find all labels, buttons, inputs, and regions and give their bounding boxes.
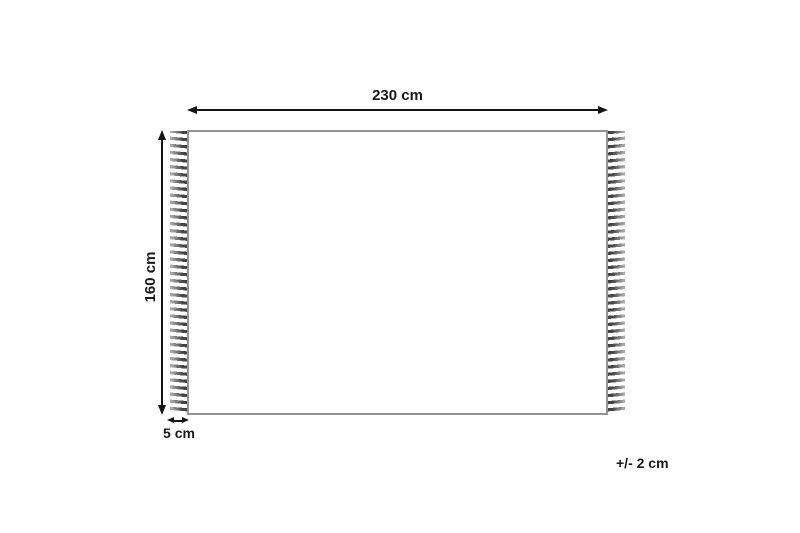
- height-arrow-shaft: [161, 138, 163, 407]
- rug-fringe-left: [170, 131, 187, 414]
- width-arrow-shaft: [195, 109, 600, 111]
- rug-fringe-right: [608, 131, 625, 414]
- fringe-dimension-arrow: [167, 417, 189, 424]
- arrowhead-down-icon: [158, 405, 166, 415]
- arrowhead-right-icon: [182, 417, 189, 423]
- arrowhead-right-icon: [598, 106, 608, 114]
- rug-dimension-diagram: 230 cm 160 cm 5 cm +/- 2 cm: [0, 0, 800, 533]
- rug-outline: [187, 130, 608, 415]
- width-dimension-arrow: [187, 106, 608, 114]
- tolerance-note: +/- 2 cm: [616, 455, 669, 471]
- fringe-length-label: 5 cm: [149, 425, 209, 441]
- height-dimension-arrow: [158, 130, 166, 415]
- width-dimension-label: 230 cm: [187, 87, 608, 104]
